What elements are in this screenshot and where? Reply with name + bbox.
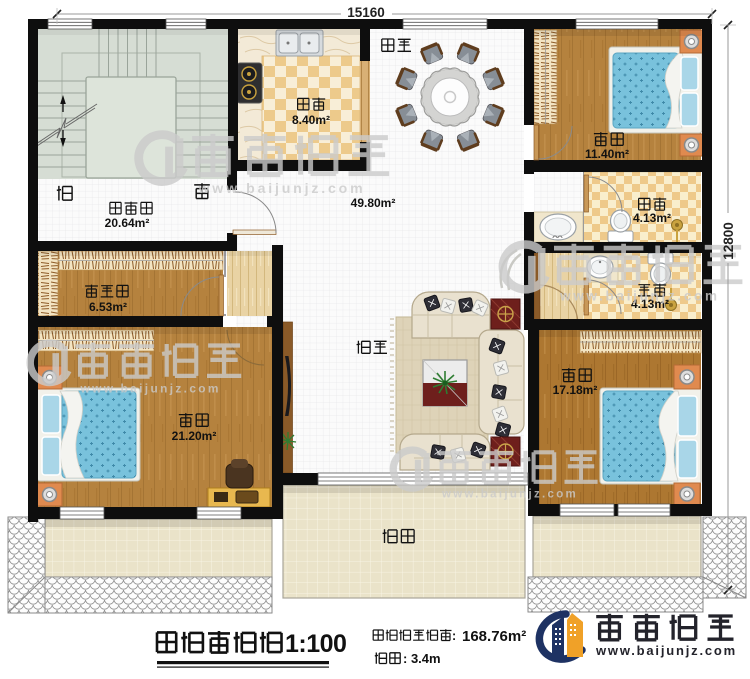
svg-text::: : xyxy=(452,629,456,643)
svg-text:4.13m²: 4.13m² xyxy=(633,211,671,225)
svg-text:21.20m²: 21.20m² xyxy=(172,429,217,443)
svg-text:6.53m²: 6.53m² xyxy=(89,300,127,314)
svg-text:168.76m²: 168.76m² xyxy=(462,628,526,645)
svg-text:49.80m²: 49.80m² xyxy=(351,196,396,210)
svg-text:8.40m²: 8.40m² xyxy=(292,113,330,127)
svg-text:www.baijunjz.com: www.baijunjz.com xyxy=(595,643,737,658)
svg-text:17.18m²: 17.18m² xyxy=(553,383,598,397)
svg-text:www.baijunjz.com: www.baijunjz.com xyxy=(198,180,366,196)
svg-text:12800: 12800 xyxy=(721,222,736,260)
svg-text:20.64m²: 20.64m² xyxy=(105,216,150,230)
svg-text:11.40m²: 11.40m² xyxy=(585,147,629,161)
svg-text:15160: 15160 xyxy=(347,5,385,20)
svg-text:www.baijunjz.com: www.baijunjz.com xyxy=(80,381,221,395)
svg-text:www.baijunjz.com: www.baijunjz.com xyxy=(559,288,720,303)
svg-text:: 3.4m: : 3.4m xyxy=(403,651,441,666)
svg-text:1:100: 1:100 xyxy=(285,630,346,658)
svg-text:www.baijunjz.com: www.baijunjz.com xyxy=(441,489,578,501)
